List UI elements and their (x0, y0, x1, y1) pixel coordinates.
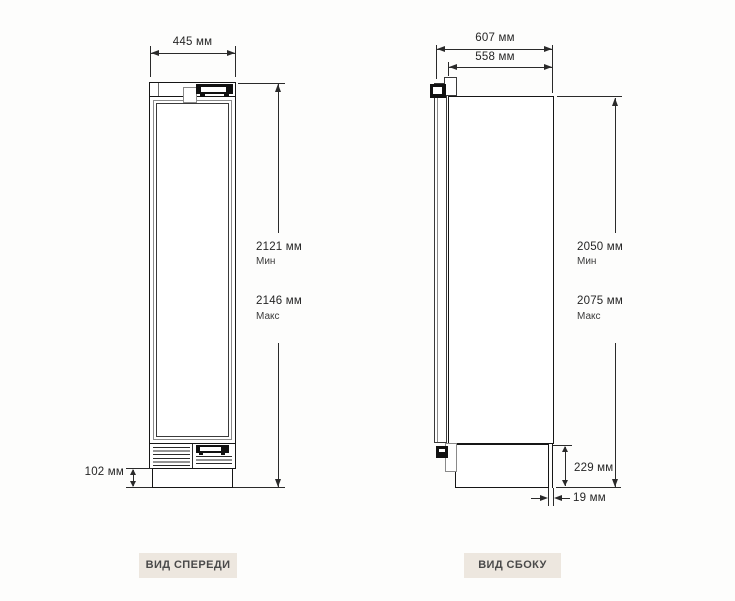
side-body (448, 96, 554, 444)
front-top-hinge-slot (201, 87, 226, 92)
dim-extension-line (556, 487, 621, 488)
arrowhead-left (437, 46, 445, 52)
dim-extension-line (548, 488, 549, 506)
arrowhead-down (562, 480, 568, 486)
front-plinth (152, 468, 233, 488)
side-top-hinge-slot (433, 87, 442, 94)
dim-extension-line (557, 96, 622, 97)
front-bottom-hinge-slot (200, 447, 221, 451)
arrowhead-right (540, 495, 548, 501)
side-view-caption: ВИД СБОКУ (464, 553, 561, 578)
front-width-dim-text: 445 мм (150, 36, 235, 48)
side-back-panel-line (552, 444, 553, 488)
front-height-max-value: 2146 мм (256, 295, 302, 307)
arrowhead-down (275, 479, 281, 487)
side-height-dim-line-lower (615, 343, 616, 487)
arrowhead-right (227, 50, 235, 56)
side-depth-total-text: 607 мм (445, 32, 545, 44)
dim-extension-line (126, 487, 152, 488)
dim-extension-line (552, 45, 553, 93)
front-top-roller-left (200, 93, 205, 97)
arrowhead-down (130, 481, 136, 487)
arrowhead-up (275, 84, 281, 92)
dim-extension-line (233, 487, 285, 488)
front-width-dim-line (151, 53, 235, 54)
appliance-dimension-diagram: 445 мм 2121 мм Мин 2146 мм Макс 102 мм В… (0, 0, 735, 601)
front-grille-divider (192, 444, 193, 468)
side-gap-dim-text: 19 мм (573, 492, 606, 504)
side-depth-total-dim-line (437, 49, 552, 50)
front-top-step-bracket (183, 87, 197, 103)
side-height-dim-line-upper (615, 98, 616, 233)
side-door-inner-line (437, 84, 438, 442)
side-depth-body-dim-line (449, 67, 552, 68)
arrowhead-right (544, 64, 552, 70)
dim-extension-line (235, 46, 236, 77)
front-view-group: 445 мм 2121 мм Мин 2146 мм Макс 102 мм В… (0, 0, 360, 601)
arrowhead-down (612, 479, 618, 487)
arrowhead-up (562, 446, 568, 452)
side-plinth (455, 444, 549, 488)
front-top-roller-right (224, 93, 229, 97)
front-height-min-value: 2121 мм (256, 241, 302, 253)
arrowhead-right (544, 46, 552, 52)
arrowhead-left (449, 64, 457, 70)
front-top-band-divider (158, 83, 159, 96)
side-gap-leader-right (561, 498, 570, 499)
front-bottom-roller-left (199, 452, 203, 455)
front-door-frame-inner (156, 103, 229, 437)
front-bottom-roller-right (221, 452, 225, 455)
side-height-max-qualifier: Макс (577, 311, 601, 322)
front-grille-slats-right (196, 456, 232, 467)
side-height-max-value: 2075 мм (577, 295, 623, 307)
arrowhead-left (151, 50, 159, 56)
front-height-min-qualifier: Мин (256, 256, 275, 267)
side-height-min-value: 2050 мм (577, 241, 623, 253)
side-height-min-qualifier: Мин (577, 256, 596, 267)
side-bottom-hinge (436, 446, 448, 458)
side-bottom-hinge-slot (439, 449, 445, 452)
side-door-slab (434, 83, 447, 443)
front-plinth-dim-text: 102 мм (78, 466, 124, 478)
front-height-dim-line-lower (278, 343, 279, 487)
front-grille-slats-left (153, 447, 190, 466)
side-view-group: 607 мм 558 мм 2050 мм Мин 2075 мм Макс 2… (360, 0, 735, 601)
side-base-dim-text: 229 мм (574, 462, 613, 474)
side-depth-body-text: 558 мм (445, 51, 545, 63)
front-view-caption: ВИД СПЕРЕДИ (139, 553, 237, 578)
front-height-max-qualifier: Макс (256, 311, 280, 322)
arrowhead-up (612, 98, 618, 106)
front-height-dim-line-upper (278, 84, 279, 233)
arrowhead-up (130, 469, 136, 475)
